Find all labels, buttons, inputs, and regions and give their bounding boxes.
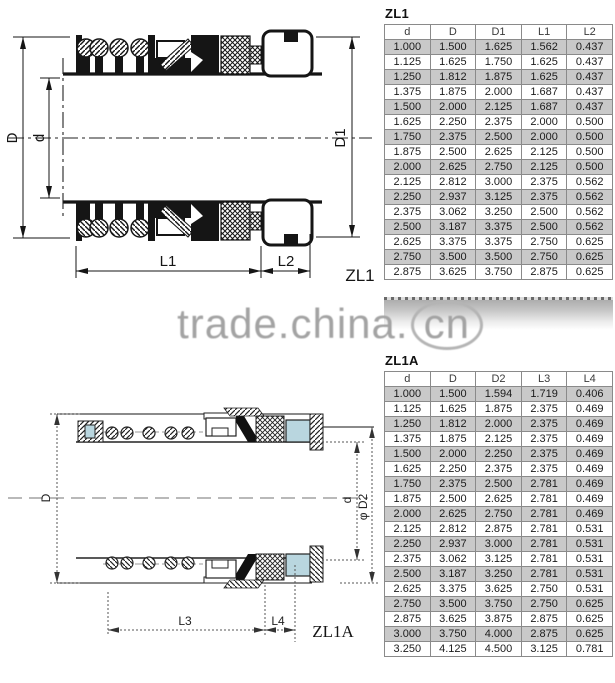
- table-cell: 2.812: [430, 175, 476, 190]
- table-cell: 3.250: [476, 567, 522, 582]
- table-cell: 2.375: [521, 175, 567, 190]
- column-header: L2: [567, 25, 613, 40]
- table-cell: 2.500: [521, 205, 567, 220]
- table-cell: 2.125: [521, 145, 567, 160]
- table-cell: 1.125: [385, 402, 431, 417]
- table-cell: 2.500: [476, 477, 522, 492]
- table-row: 1.8752.5002.6252.1250.500: [385, 145, 613, 160]
- table-cell: 2.875: [521, 612, 567, 627]
- table-cell: 2.781: [521, 477, 567, 492]
- table-row: 1.1251.6251.8752.3750.469: [385, 402, 613, 417]
- watermark: trade.china.cn: [130, 300, 530, 350]
- table-cell: 3.125: [476, 552, 522, 567]
- table-cell: 0.437: [567, 100, 613, 115]
- table-cell: 1.750: [476, 55, 522, 70]
- table-cell: 0.531: [567, 582, 613, 597]
- header-row: dDD1L1L2: [385, 25, 613, 40]
- seat-notch: [284, 30, 298, 42]
- table-cell: 2.250: [385, 537, 431, 552]
- table-row: 2.1252.8123.0002.3750.562: [385, 175, 613, 190]
- seal-face-ring: [256, 416, 284, 442]
- table-cell: 2.500: [430, 492, 476, 507]
- table-cell: 0.469: [567, 447, 613, 462]
- table-row: 1.3751.8752.0001.6870.437: [385, 85, 613, 100]
- dim-label-D1: D1: [332, 128, 349, 147]
- table-row: 1.8752.5002.6252.7810.469: [385, 492, 613, 507]
- table-cell: 2.750: [521, 582, 567, 597]
- table-cell: 2.781: [521, 552, 567, 567]
- table-cell: 2.781: [521, 537, 567, 552]
- table-cell: 2.750: [385, 597, 431, 612]
- table-cell: 2.500: [476, 130, 522, 145]
- table-cell: 2.750: [476, 507, 522, 522]
- zl1a-table-block: ZL1A dDD2L3L41.0001.5001.5941.7190.4061.…: [384, 353, 613, 657]
- table-cell: 1.000: [385, 387, 431, 402]
- table-cell: 2.750: [521, 250, 567, 265]
- table-cell: 2.625: [476, 492, 522, 507]
- header-row: dDD2L3L4: [385, 372, 613, 387]
- seal-assembly-bottom: [103, 546, 323, 588]
- table-cell: 2.812: [430, 522, 476, 537]
- table-cell: 2.625: [385, 235, 431, 250]
- column-header: D: [430, 25, 476, 40]
- table-cell: 2.875: [385, 265, 431, 280]
- table-cell: 2.250: [430, 115, 476, 130]
- seat-collar: [310, 414, 323, 450]
- table-cell: 1.719: [521, 387, 567, 402]
- table-cell: 1.125: [385, 55, 431, 70]
- table-cell: 3.250: [385, 642, 431, 657]
- table-cell: 2.000: [430, 447, 476, 462]
- table-cell: 2.000: [476, 85, 522, 100]
- table-cell: 2.375: [476, 115, 522, 130]
- table-cell: 2.375: [521, 432, 567, 447]
- table-row: 1.0001.5001.5941.7190.406: [385, 387, 613, 402]
- table-cell: 4.500: [476, 642, 522, 657]
- table-cell: 2.125: [385, 522, 431, 537]
- table-cell: 2.500: [385, 220, 431, 235]
- watermark-cn-badge: cn: [411, 300, 483, 350]
- zl1-technical-drawing: D d D1 L1 L2 ZL1: [0, 0, 380, 300]
- table-cell: 1.250: [385, 417, 431, 432]
- table-cell: 0.562: [567, 190, 613, 205]
- table-row: 1.5002.0002.1251.6870.437: [385, 100, 613, 115]
- dim-label-D: D: [39, 493, 53, 502]
- table-cell: 2.250: [385, 190, 431, 205]
- table-row: 2.3753.0623.1252.7810.531: [385, 552, 613, 567]
- table-cell: 3.375: [430, 235, 476, 250]
- table-cell: 2.781: [521, 492, 567, 507]
- table-cell: 2.625: [430, 507, 476, 522]
- table-cell: 2.875: [476, 522, 522, 537]
- table-cell: 0.531: [567, 522, 613, 537]
- table-cell: 0.625: [567, 265, 613, 280]
- table-cell: 1.812: [430, 70, 476, 85]
- table-cell: 0.437: [567, 85, 613, 100]
- table-cell: 0.469: [567, 462, 613, 477]
- table-cell: 0.531: [567, 567, 613, 582]
- table-row: 1.2501.8121.8751.6250.437: [385, 70, 613, 85]
- watermark-text: trade.china.: [177, 300, 408, 347]
- table-cell: 2.750: [385, 250, 431, 265]
- table-cell: 1.375: [385, 432, 431, 447]
- column-header: D: [430, 372, 476, 387]
- table-cell: 0.469: [567, 492, 613, 507]
- zl1-table-block: ZL1 dDD1L1L21.0001.5001.6251.5620.4371.1…: [384, 6, 613, 280]
- table-cell: 1.875: [385, 145, 431, 160]
- table-cell: 3.875: [476, 612, 522, 627]
- zl1a-dimension-table: dDD2L3L41.0001.5001.5941.7190.4061.1251.…: [384, 371, 613, 657]
- table-row: 3.2504.1254.5003.1250.781: [385, 642, 613, 657]
- table-row: 1.7502.3752.5002.7810.469: [385, 477, 613, 492]
- table-cell: 3.375: [430, 582, 476, 597]
- table-cell: 4.000: [476, 627, 522, 642]
- table-cell: 2.625: [385, 582, 431, 597]
- table-cell: 2.781: [521, 567, 567, 582]
- table-cell: 3.000: [476, 537, 522, 552]
- dim-label-L3: L3: [178, 614, 192, 628]
- page: { "watermark": {"prefix": "trade.china."…: [0, 0, 615, 683]
- table-row: 1.3751.8752.1252.3750.469: [385, 432, 613, 447]
- table-row: 1.7502.3752.5002.0000.500: [385, 130, 613, 145]
- zl1a-table-title: ZL1A: [385, 353, 613, 368]
- table-cell: 2.000: [430, 100, 476, 115]
- table-row: 2.8753.6253.8752.8750.625: [385, 612, 613, 627]
- table-row: 2.3753.0623.2502.5000.562: [385, 205, 613, 220]
- table-cell: 2.781: [521, 507, 567, 522]
- table-cell: 3.375: [476, 220, 522, 235]
- table-cell: 2.750: [521, 235, 567, 250]
- table-cell: 1.000: [385, 40, 431, 55]
- table-cell: 3.625: [430, 612, 476, 627]
- table-cell: 2.000: [521, 130, 567, 145]
- table-cell: 2.375: [430, 130, 476, 145]
- table-cell: 2.250: [430, 462, 476, 477]
- dim-label-D: D: [4, 132, 21, 143]
- table-row: 1.6252.2502.3752.0000.500: [385, 115, 613, 130]
- table-cell: 0.500: [567, 145, 613, 160]
- table-cell: 2.375: [385, 205, 431, 220]
- table-cell: 0.437: [567, 70, 613, 85]
- table-cell: 1.625: [476, 40, 522, 55]
- table-cell: 0.437: [567, 40, 613, 55]
- table-cell: 1.625: [430, 55, 476, 70]
- table-cell: 0.781: [567, 642, 613, 657]
- table-row: 2.1252.8122.8752.7810.531: [385, 522, 613, 537]
- table-cell: 2.875: [385, 612, 431, 627]
- retainer-and-bellows: [148, 35, 219, 74]
- table-row: 1.5002.0002.2502.3750.469: [385, 447, 613, 462]
- table-cell: 1.812: [430, 417, 476, 432]
- table-row: 1.2501.8122.0002.3750.469: [385, 417, 613, 432]
- table-cell: 3.750: [476, 597, 522, 612]
- table-cell: 3.625: [430, 265, 476, 280]
- table-cell: 2.500: [430, 145, 476, 160]
- table-cell: 0.625: [567, 250, 613, 265]
- table-cell: 2.750: [521, 597, 567, 612]
- table-cell: 2.625: [476, 145, 522, 160]
- column-header: L4: [567, 372, 613, 387]
- table-cell: 1.375: [385, 85, 431, 100]
- table-cell: 1.500: [385, 447, 431, 462]
- table-cell: 2.500: [521, 220, 567, 235]
- table-row: 1.6252.2502.3752.3750.469: [385, 462, 613, 477]
- table-cell: 2.250: [476, 447, 522, 462]
- table-cell: 0.469: [567, 432, 613, 447]
- table-cell: 3.500: [430, 250, 476, 265]
- dim-label-d: d: [31, 134, 48, 142]
- table-row: 2.8753.6253.7502.8750.625: [385, 265, 613, 280]
- table-cell: 2.781: [521, 522, 567, 537]
- table-cell: 0.562: [567, 175, 613, 190]
- table-cell: 0.469: [567, 417, 613, 432]
- zl1a-drawing-label: ZL1A: [312, 622, 354, 641]
- table-cell: 1.875: [476, 402, 522, 417]
- table-cell: 2.125: [476, 100, 522, 115]
- table-cell: 1.625: [521, 70, 567, 85]
- table-cell: 0.531: [567, 537, 613, 552]
- table-cell: 0.469: [567, 402, 613, 417]
- column-header: d: [385, 372, 431, 387]
- table-cell: 3.187: [430, 567, 476, 582]
- table-row: 3.0003.7504.0002.8750.625: [385, 627, 613, 642]
- table-cell: 0.500: [567, 130, 613, 145]
- table-cell: 1.250: [385, 70, 431, 85]
- table-cell: 3.500: [476, 250, 522, 265]
- table-cell: 3.125: [521, 642, 567, 657]
- table-cell: 1.562: [521, 40, 567, 55]
- table-cell: 1.625: [385, 462, 431, 477]
- table-cell: 1.500: [430, 387, 476, 402]
- column-header: D1: [476, 25, 522, 40]
- table-cell: 0.562: [567, 205, 613, 220]
- dim-label-L2: L2: [278, 253, 295, 270]
- table-cell: 2.375: [385, 552, 431, 567]
- table-cell: 0.437: [567, 55, 613, 70]
- table-cell: 3.062: [430, 552, 476, 567]
- column-header: L1: [521, 25, 567, 40]
- table-cell: 2.375: [476, 462, 522, 477]
- table-cell: 0.469: [567, 477, 613, 492]
- table-cell: 3.000: [385, 627, 431, 642]
- table-cell: 1.625: [430, 402, 476, 417]
- dim-label-L4: L4: [271, 614, 285, 628]
- table-cell: 3.125: [476, 190, 522, 205]
- table-cell: 0.500: [567, 160, 613, 175]
- seal-assembly-top: [76, 30, 312, 76]
- table-cell: 2.125: [476, 432, 522, 447]
- table-cell: 0.625: [567, 597, 613, 612]
- table-cell: 2.000: [385, 507, 431, 522]
- table-cell: 0.625: [567, 235, 613, 250]
- seal-face-ring: [221, 36, 250, 74]
- table-cell: 2.375: [521, 402, 567, 417]
- table-cell: 0.531: [567, 552, 613, 567]
- table-cell: 1.875: [476, 70, 522, 85]
- table-row: 2.5003.1873.2502.7810.531: [385, 567, 613, 582]
- zl1-dimension-table: dDD1L1L21.0001.5001.6251.5620.4371.1251.…: [384, 24, 613, 280]
- table-cell: 1.875: [385, 492, 431, 507]
- table-cell: 4.125: [430, 642, 476, 657]
- column-header: D2: [476, 372, 522, 387]
- table-cell: 0.625: [567, 627, 613, 642]
- table-cell: 1.625: [521, 55, 567, 70]
- table-cell: 1.875: [430, 432, 476, 447]
- seal-assembly-bottom: [76, 200, 312, 246]
- seat-gasket: [250, 46, 261, 64]
- table-cell: 2.125: [385, 175, 431, 190]
- zl1a-technical-drawing: D d φ D2 L3 L4 ZL1A: [0, 380, 380, 683]
- table-cell: 2.375: [521, 462, 567, 477]
- table-cell: 2.937: [430, 537, 476, 552]
- table-row: 2.7503.5003.7502.7500.625: [385, 597, 613, 612]
- table-cell: 3.500: [430, 597, 476, 612]
- table-cell: 1.500: [430, 40, 476, 55]
- table-cell: 3.750: [476, 265, 522, 280]
- table-row: 1.1251.6251.7501.6250.437: [385, 55, 613, 70]
- table-cell: 2.375: [430, 477, 476, 492]
- table-cell: 3.750: [430, 627, 476, 642]
- table-row: 2.2502.9373.1252.3750.562: [385, 190, 613, 205]
- table-cell: 0.625: [567, 612, 613, 627]
- table-cell: 1.687: [521, 85, 567, 100]
- drive-collar: [78, 421, 103, 442]
- table-row: 2.0002.6252.7502.1250.500: [385, 160, 613, 175]
- table-cell: 3.062: [430, 205, 476, 220]
- table-cell: 0.406: [567, 387, 613, 402]
- table-cell: 3.187: [430, 220, 476, 235]
- table-cell: 0.500: [567, 115, 613, 130]
- table-cell: 0.562: [567, 220, 613, 235]
- table-row: 2.0002.6252.7502.7810.469: [385, 507, 613, 522]
- table-cell: 1.500: [385, 100, 431, 115]
- table-cell: 2.625: [430, 160, 476, 175]
- table-cell: 2.750: [476, 160, 522, 175]
- column-header: L3: [521, 372, 567, 387]
- table-cell: 2.375: [521, 190, 567, 205]
- retainer-and-bellows: [204, 408, 264, 442]
- table-cell: 2.125: [521, 160, 567, 175]
- table-cell: 2.000: [476, 417, 522, 432]
- table-row: 2.6253.3753.6252.7500.531: [385, 582, 613, 597]
- table-cell: 1.625: [385, 115, 431, 130]
- table-cell: 1.750: [385, 130, 431, 145]
- table-cell: 1.594: [476, 387, 522, 402]
- table-cell: 2.500: [385, 567, 431, 582]
- zl1-drawing-label: ZL1: [345, 266, 374, 285]
- table-row: 2.7503.5003.5002.7500.625: [385, 250, 613, 265]
- table-cell: 2.375: [521, 447, 567, 462]
- table-cell: 2.875: [521, 265, 567, 280]
- dim-label-d: d: [340, 497, 354, 504]
- table-row: 2.5003.1873.3752.5000.562: [385, 220, 613, 235]
- dim-label-L1: L1: [160, 253, 177, 270]
- table-cell: 1.750: [385, 477, 431, 492]
- zl1-table-title: ZL1: [385, 6, 613, 21]
- table-cell: 3.625: [476, 582, 522, 597]
- spring-coils: [106, 427, 194, 439]
- table-cell: 2.000: [521, 115, 567, 130]
- table-cell: 3.375: [476, 235, 522, 250]
- table-row: 1.0001.5001.6251.5620.437: [385, 40, 613, 55]
- table-row: 2.6253.3753.3752.7500.625: [385, 235, 613, 250]
- table-cell: 1.875: [430, 85, 476, 100]
- dim-label-D2: φ D2: [356, 493, 370, 520]
- table-cell: 2.000: [385, 160, 431, 175]
- column-header: d: [385, 25, 431, 40]
- table-cell: 2.375: [521, 417, 567, 432]
- table-row: 2.2502.9373.0002.7810.531: [385, 537, 613, 552]
- table-cell: 3.000: [476, 175, 522, 190]
- table-cell: 3.250: [476, 205, 522, 220]
- table-cell: 0.469: [567, 507, 613, 522]
- table-cell: 1.687: [521, 100, 567, 115]
- table-cell: 2.875: [521, 627, 567, 642]
- stationary-seat: [286, 420, 310, 442]
- spring-coils: [77, 39, 149, 74]
- table-cell: 2.937: [430, 190, 476, 205]
